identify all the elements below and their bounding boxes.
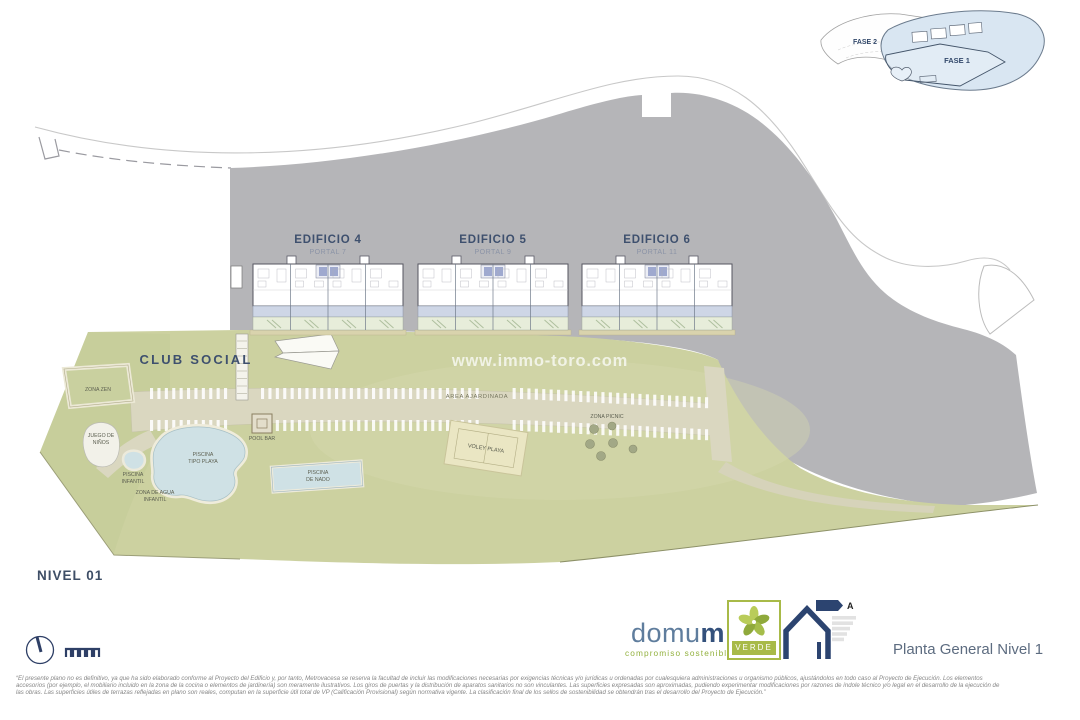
splash-zone-label: INFANTIL [144,497,167,503]
buildings [231,256,735,335]
disclaimer-line: accesorios (por ejemplo, el mobiliario i… [16,682,1068,689]
disclaimer-text: “El presente plano no es definitivo, ya … [16,675,1068,697]
lap-pool-label: DE NADO [306,477,330,483]
brand-logo: domum compromiso sostenible [625,620,725,658]
lap-pool-label: PISCINA [308,470,329,476]
energy-arrow [816,600,843,611]
verde-badge: VERDE [727,600,781,660]
kids-pool [123,451,145,470]
energy-house-icon: A [778,596,860,662]
beach-pool-label: TIPO PLAYA [188,459,218,465]
scale-bar-icon [66,649,99,657]
zona-zen-area [64,365,133,407]
building-name-label: EDIFICIO 4 [294,234,361,246]
splash-zone-label: ZONA DE AGUA [136,490,175,496]
playground-label: JUEGO DE [88,433,115,439]
brand-name: domum [625,620,725,647]
playground-label: NIÑOS [93,439,110,446]
footer-symbols [27,637,100,664]
plan-title: Planta General Nivel 1 [893,641,1043,658]
beach-pool-label: PISCINA [193,452,214,458]
kids-pool-label: INFANTIL [122,479,145,485]
disclaimer-line: las obras. Las superficies útiles de ter… [16,689,1068,696]
garden-area-label: AREA AJARDINADA [446,394,508,400]
building-edificio-5 [415,256,571,335]
brand-tagline: compromiso sostenible [625,648,725,658]
north-arrow-icon [27,637,54,664]
road-end-marker [979,265,1034,334]
fase1-label: FASE 1 [944,56,970,65]
verde-badge-label: VERDE [732,641,776,655]
picnic-label: ZONA PICNIC [590,414,623,420]
inset-map: FASE 2 FASE 1 [821,11,1044,90]
zona-zen-label: ZONA ZEN [85,387,111,393]
club-social-label: CLUB SOCIAL [139,352,252,367]
annex-structure [231,266,242,288]
site-plan-drawing: EDIFICIO 4 EDIFICIO 5 EDIFICIO 6 PORTAL … [0,0,1080,720]
portal-label: PORTAL 7 [310,249,347,256]
pool-bar-structure [252,414,272,433]
leaf-pinwheel-icon [737,605,771,639]
building-name-label: EDIFICIO 5 [459,234,526,246]
building-edificio-4 [250,256,406,335]
kids-pool-label: PISCINA [123,472,144,478]
fase2-label: FASE 2 [853,39,877,46]
level-label: NIVEL 01 [37,568,103,583]
building-name-label: EDIFICIO 6 [623,234,690,246]
portal-label: PORTAL 11 [637,249,678,256]
energy-rating-label: A [847,601,854,611]
watermark: www.immo-toro.com [451,352,628,370]
site-plan-page: EDIFICIO 4 EDIFICIO 5 EDIFICIO 6 PORTAL … [0,0,1080,720]
disclaimer-line: “El presente plano no es definitivo, ya … [16,675,1068,682]
portal-label: PORTAL 9 [475,249,512,256]
pool-bar-label: POOL BAR [249,436,276,442]
building-edificio-6 [579,256,735,335]
